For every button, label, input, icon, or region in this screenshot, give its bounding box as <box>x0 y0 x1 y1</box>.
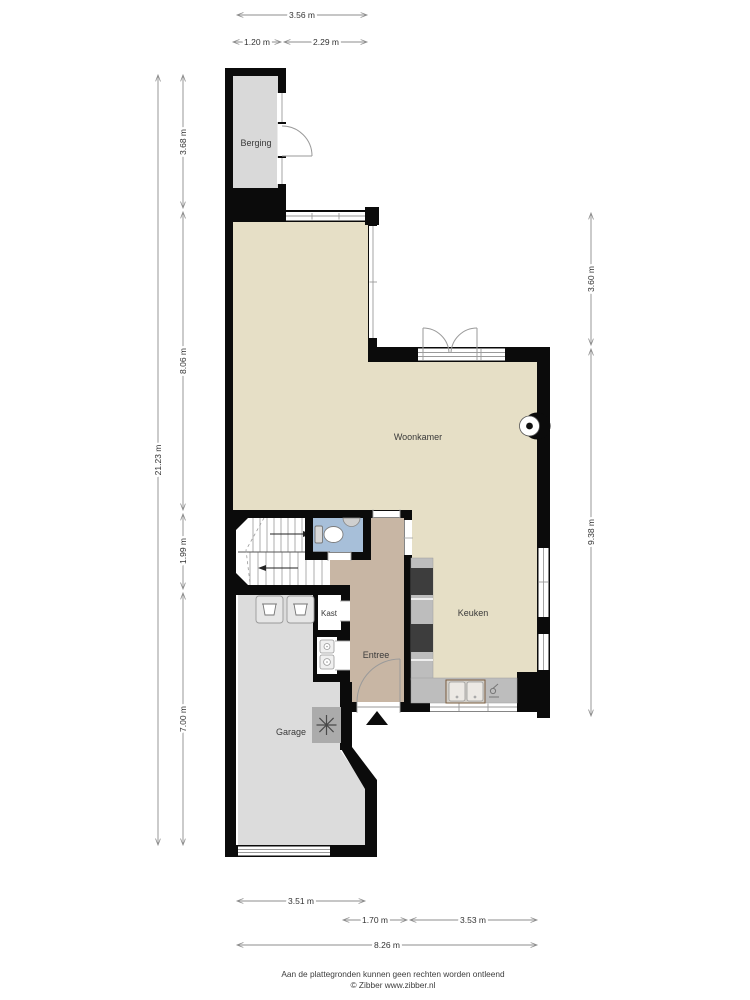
boiler-icon <box>312 707 341 743</box>
meterkast-door-opening <box>335 641 350 670</box>
kast-label: Kast <box>321 609 338 618</box>
keuken-bottom-window <box>430 703 517 712</box>
front-door-opening <box>357 701 400 713</box>
dim-right-1: 9.38 m <box>586 519 596 545</box>
dim-top-2: 2.29 m <box>313 37 339 47</box>
appliance-icon <box>411 568 433 595</box>
dim-top-0: 3.56 m <box>289 10 315 20</box>
french-door-sill <box>418 349 505 361</box>
meter-icon <box>320 640 334 653</box>
toilet-icon <box>315 526 343 543</box>
keuken-label: Keuken <box>458 608 489 618</box>
dim-left-3: 7.00 m <box>178 706 188 732</box>
dim-left-1: 8.06 m <box>178 348 188 374</box>
dim-bottom-2: 3.53 m <box>460 915 486 925</box>
dim-top-1: 1.20 m <box>244 37 270 47</box>
dim-left-2: 1.99 m <box>178 538 188 564</box>
berging-window-top <box>277 93 287 122</box>
floor-plan: Berging Woonkamer Keuken Kast Entree Gar… <box>0 0 750 1000</box>
woonkamer-top-window <box>286 212 365 221</box>
dim-right-0: 3.60 m <box>586 266 596 292</box>
dim-left-0: 3.68 m <box>178 129 188 155</box>
garage-label: Garage <box>276 727 306 737</box>
berging-window-bottom <box>277 158 287 184</box>
kitchen-sink-icon <box>446 680 485 703</box>
dim-bottom-0: 3.51 m <box>288 896 314 906</box>
washing-machine-icon <box>287 596 314 623</box>
woonkamer-side-window <box>369 226 378 338</box>
woonkamer-label: Woonkamer <box>394 432 442 442</box>
garage-door <box>238 847 330 856</box>
floorplan-page: Berging Woonkamer Keuken Kast Entree Gar… <box>0 0 750 1000</box>
dim-bottom-3: 8.26 m <box>374 940 400 950</box>
meter-icon <box>320 655 334 669</box>
berging-label: Berging <box>240 138 271 148</box>
kast-door-opening <box>340 601 350 621</box>
entree-label: Entree <box>363 650 390 660</box>
keuken-side-window-bottom <box>539 634 549 670</box>
appliance-icon <box>411 624 433 652</box>
dim-bottom-1: 1.70 m <box>362 915 388 925</box>
copyright-text: © Zibber www.zibber.nl <box>351 980 436 990</box>
berging-door-opening <box>278 124 287 156</box>
keuken-side-window-top <box>539 548 549 617</box>
berging-floor <box>233 76 278 188</box>
washing-machine-icon <box>256 596 283 623</box>
disclaimer-text: Aan de plattegronden kunnen geen rechten… <box>281 969 505 979</box>
dim-left-total: 21.23 m <box>153 445 163 476</box>
wc-door-opening <box>328 551 351 561</box>
keuken-doorway <box>403 520 413 555</box>
footer: Aan de plattegronden kunnen geen rechten… <box>281 969 505 990</box>
entrance-icon <box>366 711 388 725</box>
